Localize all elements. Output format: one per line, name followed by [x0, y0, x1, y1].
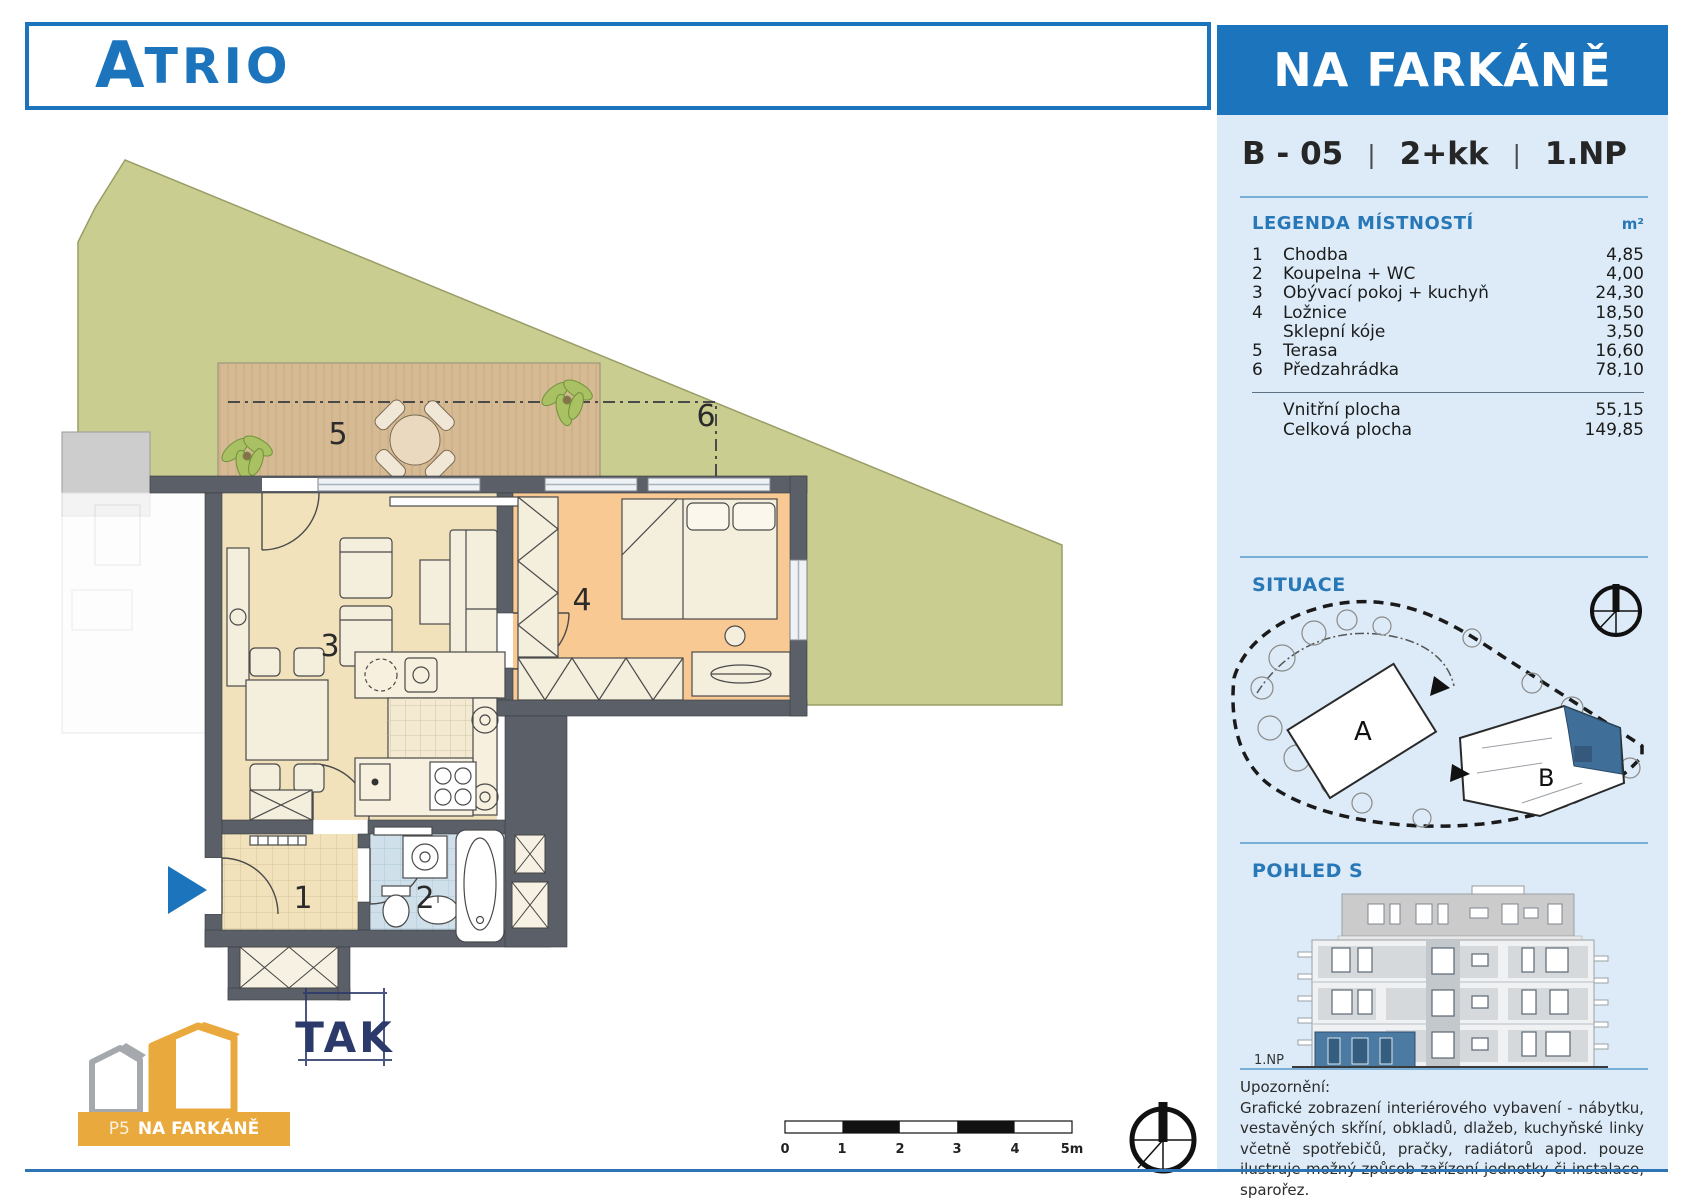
- atrio-logo-box: ATRIO: [25, 22, 1211, 110]
- legend-title: LEGENDA MÍSTNOSTÍ: [1252, 213, 1474, 234]
- legend-unit-header: m²: [1622, 215, 1644, 233]
- scale-bar: 0 1 2 3 4 5m: [780, 1121, 1083, 1157]
- disclaimer-title: Upozornění:: [1240, 1078, 1644, 1096]
- room-number-bath: 2: [415, 881, 434, 916]
- project-title: NA FARKÁNĚ: [1273, 43, 1611, 97]
- compass-icon: [1590, 584, 1642, 635]
- building-b: B: [1460, 706, 1624, 816]
- divider: [1240, 196, 1648, 198]
- unit-floor: 1.NP: [1545, 136, 1627, 172]
- floor-plan: 1 2 3 4 5 6 TAK 0 1 2: [0, 0, 1217, 1200]
- floor-label: 1.NP: [1254, 1053, 1284, 1068]
- scale-label: 2: [895, 1142, 904, 1157]
- p5-logo-bar: P5 NA FARKÁNĚ: [78, 1112, 290, 1146]
- p5-logo-buildings: [92, 1022, 240, 1112]
- unit-layout: 2+kk: [1400, 136, 1489, 172]
- scale-label: 5m: [1061, 1142, 1084, 1157]
- p5-logo-prefix: P5: [109, 1119, 130, 1139]
- room-number-bedroom: 4: [572, 583, 591, 618]
- building-a-label: A: [1354, 717, 1372, 747]
- building-b-label: B: [1538, 764, 1554, 792]
- hall-floor: [222, 834, 358, 930]
- atrio-logo-text: A: [95, 34, 145, 98]
- entrance-arrow-icon: [168, 866, 207, 914]
- total-row: Celková plocha 149,85: [1252, 420, 1644, 440]
- room-number-terrace: 5: [328, 417, 347, 452]
- disclaimer: Upozornění: Grafické zobrazení interiéro…: [1240, 1078, 1644, 1200]
- legend-row: 6 Předzahrádka 78,10: [1252, 361, 1644, 380]
- project-title-banner: NA FARKÁNĚ: [1217, 25, 1668, 115]
- scale-label: 3: [952, 1142, 961, 1157]
- scale-label: 0: [780, 1142, 789, 1157]
- unit-id: B - 05: [1242, 136, 1343, 172]
- legend-row: 2 Koupelna + WC 4,00: [1252, 265, 1644, 284]
- legend-row: 4 Ložnice 18,50: [1252, 304, 1644, 323]
- building-elevation: 1.NP: [1240, 884, 1660, 1072]
- p5-logo-name: NA FARKÁNĚ: [138, 1119, 259, 1139]
- room-number-living: 3: [320, 629, 339, 664]
- compass-icon: [1132, 1102, 1194, 1172]
- divider: [1240, 842, 1648, 844]
- unit-identifier-row: B - 05 | 2+kk | 1.NP: [1242, 118, 1652, 190]
- legend-row: Sklepní kóje 3,50: [1252, 323, 1644, 342]
- room-number-garden: 6: [696, 399, 715, 434]
- room-number-hall: 1: [293, 881, 312, 916]
- tak-logo-text: TAK: [295, 1013, 394, 1062]
- scale-label: 1: [837, 1142, 846, 1157]
- separator: |: [1512, 140, 1520, 169]
- legend-row: 1 Chodba 4,85: [1252, 246, 1644, 265]
- disclaimer-body: Grafické zobrazení interiérového vybaven…: [1240, 1098, 1644, 1200]
- legend-room-list: 1 Chodba 4,85 2 Koupelna + WC 4,00 3 Obý…: [1252, 246, 1644, 380]
- total-row: Vnitřní plocha 55,15: [1252, 400, 1644, 420]
- legend-row: 3 Obývací pokoj + kuchyň 24,30: [1252, 284, 1644, 303]
- divider: [1240, 556, 1648, 558]
- pohled-title: POHLED S: [1252, 860, 1363, 882]
- separator: |: [1367, 140, 1375, 169]
- bottom-rule: [25, 1169, 1668, 1172]
- neighbour-unit-faded: [62, 493, 205, 733]
- legend-header: LEGENDA MÍSTNOSTÍ m²: [1252, 213, 1644, 234]
- building-a: A: [1288, 664, 1436, 798]
- legend-row: 5 Terasa 16,60: [1252, 342, 1644, 361]
- brochure-page: 1 2 3 4 5 6 TAK 0 1 2: [0, 0, 1698, 1200]
- site-road: [1257, 633, 1454, 693]
- legend-totals: Vnitřní plocha 55,15 Celková plocha 149,…: [1252, 392, 1644, 440]
- site-plan: A B: [1222, 578, 1662, 840]
- divider: [1240, 1068, 1648, 1070]
- scale-label: 4: [1010, 1142, 1019, 1157]
